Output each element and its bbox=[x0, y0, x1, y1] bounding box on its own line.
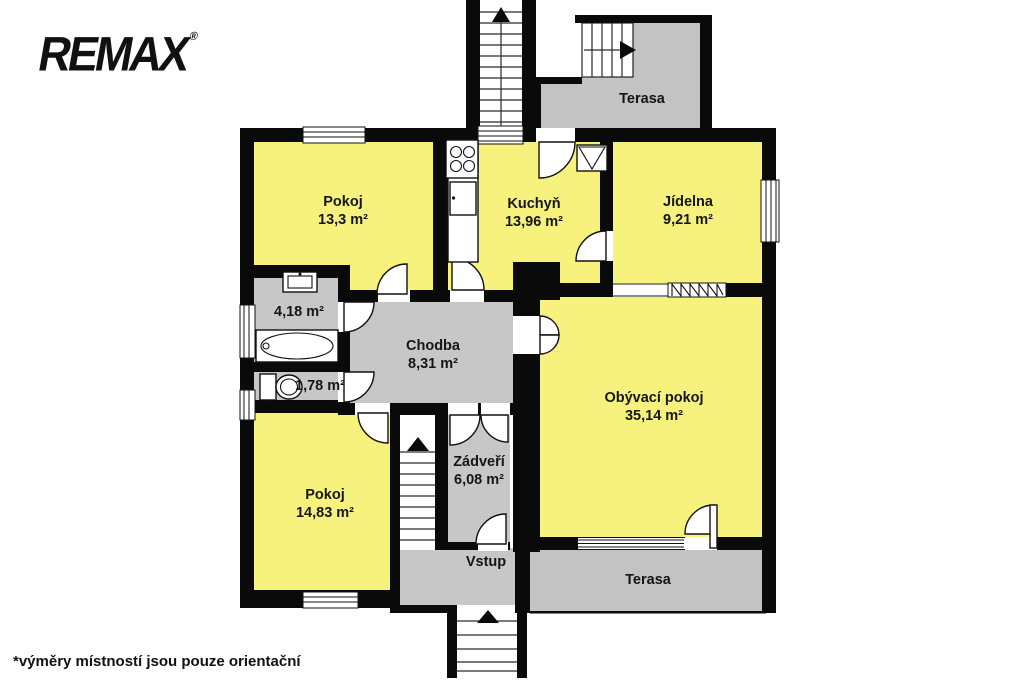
room-label-chodba: Chodba8,31 m² bbox=[406, 337, 460, 373]
stove-icon bbox=[446, 140, 478, 178]
bathtub-icon bbox=[256, 330, 338, 362]
window-pokoj1-top bbox=[303, 127, 365, 143]
stairwell-mid-area bbox=[400, 415, 435, 550]
room-label-pokoj2: Pokoj14,83 m² bbox=[296, 486, 354, 522]
room-label-terasa-top: Terasa bbox=[619, 90, 665, 108]
window-jidelna-right bbox=[761, 180, 779, 242]
room-label-wc: 1,78 m² bbox=[295, 377, 345, 395]
room-label-vstup: Vstup bbox=[466, 553, 506, 571]
folding-door-jidelna-obyvaci bbox=[668, 283, 726, 297]
window-wc-left bbox=[240, 390, 255, 420]
window-koupelna-left bbox=[240, 305, 255, 358]
door-leaf-terasa bbox=[710, 505, 717, 548]
remax-logo: REMAX® bbox=[34, 26, 200, 82]
disclaimer-text: *výměry místností jsou pouze orientační bbox=[13, 653, 301, 670]
pantry-shaft-icon bbox=[577, 145, 607, 171]
window-pokoj2-bottom bbox=[303, 592, 358, 608]
room-label-koupelna: 4,18 m² bbox=[274, 303, 324, 321]
room-label-zadveri: Zádveří6,08 m² bbox=[453, 453, 505, 489]
floorplan-drawing bbox=[0, 0, 1024, 682]
room-label-kuchyn: Kuchyň13,96 m² bbox=[505, 195, 563, 231]
sink-icon bbox=[283, 272, 317, 292]
opening-jidelna-obyvaci bbox=[613, 283, 668, 297]
remax-logo-text: REMAX bbox=[34, 26, 191, 81]
room-label-pokoj1: Pokoj13,3 m² bbox=[318, 193, 368, 229]
stair-landing-strip bbox=[478, 126, 523, 144]
room-label-obyvaci-pokoj: Obývací pokoj35,14 m² bbox=[604, 389, 703, 425]
floorplan-page: Pokoj13,3 m² Kuchyň13,96 m² Jídelna9,21 … bbox=[0, 0, 1024, 682]
room-label-terasa-bottom: Terasa bbox=[625, 571, 671, 589]
room-label-jidelna: Jídelna9,21 m² bbox=[663, 193, 713, 229]
fridge-icon bbox=[450, 182, 476, 215]
